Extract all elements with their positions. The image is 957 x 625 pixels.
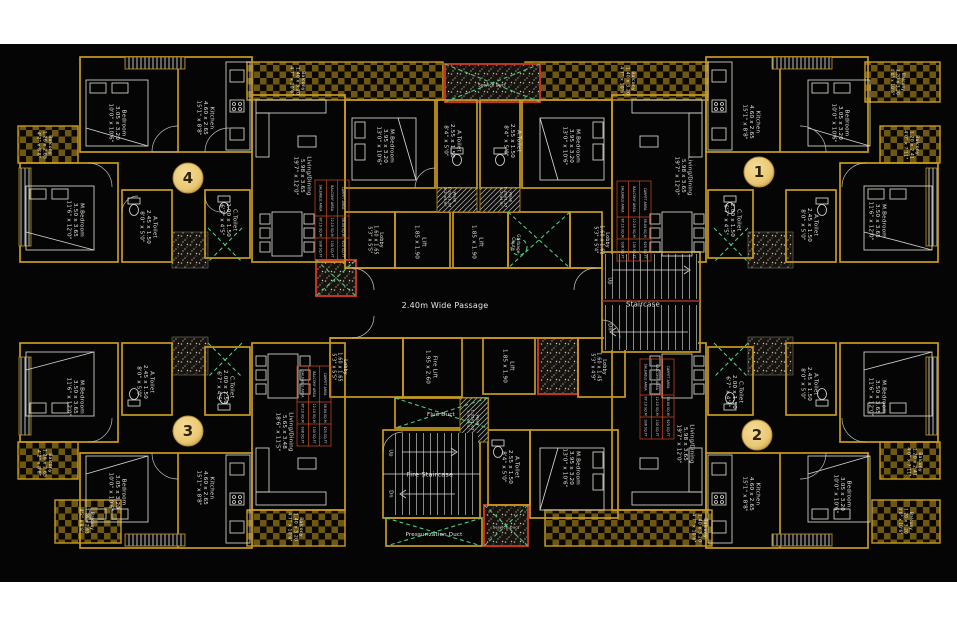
svg-text:4: 4 [183,169,193,187]
staircase-dn-label: Dn [606,323,612,330]
svg-text:58.04 SQ.M: 58.04 SQ.M [643,218,647,237]
u3-living-label: Living/Dining5.65 x 3.4818'6" x 11'5" [274,412,293,451]
floor-plan-screenshot: Bedroom3.05 x 3.2010'0" x 10'6"Kitchen4.… [0,0,957,625]
svg-text:625 SQ.FT: 625 SQ.FT [323,427,327,445]
svg-text:938 SQ.FT: 938 SQ.FT [643,420,647,438]
flue-duct-label: Flue Duct [427,412,456,418]
svg-text:130 SQ.FT: 130 SQ.FT [312,427,316,445]
svg-text:87.10 SQ.M: 87.10 SQ.M [643,396,647,415]
floor-plan-canvas: Bedroom3.05 x 3.2010'0" x 10'6"Kitchen4.… [0,0,957,625]
svg-text:58.04 SQ.M: 58.04 SQ.M [323,403,327,422]
svg-text:BALCONY AREA: BALCONY AREA [312,371,316,397]
area-table-unit4: CARPET AREA58.04 SQ.M625 SQ.FTBALCONY AR… [315,180,349,260]
svg-text:CARPET AREA: CARPET AREA [323,373,327,397]
svg-text:938 SQ.FT: 938 SQ.FT [318,241,322,259]
u1-mbedroom2-label: M.Bedroom3.95 x 3.2013'0" x 10'6" [561,126,580,165]
svg-text:BALCONY AREA: BALCONY AREA [632,186,636,212]
svg-text:87.10 SQ.M: 87.10 SQ.M [620,218,624,237]
staircase-label: Staircase [626,300,660,308]
svg-text:SALEABLE AREA: SALEABLE AREA [620,186,624,213]
u2-mbedroom-label: M.Bedroom3.50 x 3.6511'6" x 12'0" [867,377,886,416]
svg-text:12.10 SQ.M: 12.10 SQ.M [312,403,316,422]
unit-badge-4: 4 [173,163,203,193]
svg-text:12.10 SQ.M: 12.10 SQ.M [655,396,659,415]
svg-text:87.10 SQ.M: 87.10 SQ.M [300,403,304,422]
u3-mbedroom-label: M.Bedroom3.50 x 3.6511'6" x 12'0" [65,377,84,416]
svg-text:625 SQ.FT: 625 SQ.FT [643,242,647,260]
svg-text:3: 3 [183,422,193,440]
svg-text:SALEABLE AREA: SALEABLE AREA [318,185,322,212]
svg-text:625 SQ.FT: 625 SQ.FT [666,420,670,438]
passage-label: 2.40m Wide Passage [402,301,489,310]
svg-text:SALEABLE AREA: SALEABLE AREA [300,371,304,398]
u1-living-label: Living/Dining5.98 x 3.6519'7" x 12'0" [673,156,692,195]
u2-living-label: Living/Dining5.98 x 3.6519'7" x 12'0" [675,424,694,463]
svg-text:2: 2 [752,426,762,444]
unit-badge-3: 3 [173,416,203,446]
staircase-up-label: Up [606,277,612,284]
svg-text:938 SQ.FT: 938 SQ.FT [300,427,304,445]
pressurization-duct-label: Pressurization Duct [406,532,464,538]
fire-staircase-label: Fire Staircase [407,470,453,478]
u4-living-label: Living/Dining5.98 x 3.6519'7" x 12'0" [292,156,311,195]
svg-text:130 SQ.FT: 130 SQ.FT [330,241,334,259]
svg-text:CARPET AREA: CARPET AREA [643,188,647,212]
svg-text:CARPET AREA: CARPET AREA [666,366,670,390]
svg-text:SALEABLE AREA: SALEABLE AREA [643,364,647,391]
u4-mbedroom-label: M.Bedroom3.50 x 3.6511'6" x 12'0" [65,200,84,239]
svg-text:12.10 SQ.M: 12.10 SQ.M [330,217,334,236]
fire-staircase-dn-label: Dn [387,490,393,497]
svg-text:12.10 SQ.M: 12.10 SQ.M [632,218,636,237]
svg-text:130 SQ.FT: 130 SQ.FT [655,420,659,438]
svg-text:130 SQ.FT: 130 SQ.FT [632,242,636,260]
u1-mbedroom-label: M.Bedroom3.50 x 3.6511'6" x 12'0" [867,201,886,240]
u2-mbedroom2-label: M.Bedroom3.95 x 3.2013'0" x 10'6" [561,448,580,487]
unit-badge-1: 1 [744,157,774,187]
area-table-unit1: CARPET AREA58.04 SQ.M625 SQ.FTBALCONY AR… [617,181,651,261]
u4-mbedroom2-label: M.Bedroom3.95 x 3.2013'0" x 10'6" [375,126,394,165]
svg-text:1: 1 [754,163,764,181]
svg-text:58.04 SQ.M: 58.04 SQ.M [341,217,345,236]
svg-text:CARPET AREA: CARPET AREA [341,187,345,211]
area-table-unit2: CARPET AREA58.04 SQ.M625 SQ.FTBALCONY AR… [640,359,674,439]
svg-text:BALCONY AREA: BALCONY AREA [330,185,334,211]
service-duct-top-label: Service Duct [478,82,506,87]
drawing-canvas [0,44,957,582]
svg-text:BALCONY AREA: BALCONY AREA [655,364,659,390]
svg-text:938 SQ.FT: 938 SQ.FT [620,242,624,260]
svg-text:87.10 SQ.M: 87.10 SQ.M [318,217,322,236]
area-table-unit3: CARPET AREA58.04 SQ.M625 SQ.FTBALCONY AR… [297,366,331,446]
service-duct-bottom-label: Service Duct [493,524,520,529]
svg-text:58.04 SQ.M: 58.04 SQ.M [666,396,670,415]
svg-text:625 SQ.FT: 625 SQ.FT [341,241,345,259]
fire-staircase-up-label: Up [387,449,393,456]
unit-badge-2: 2 [742,420,772,450]
